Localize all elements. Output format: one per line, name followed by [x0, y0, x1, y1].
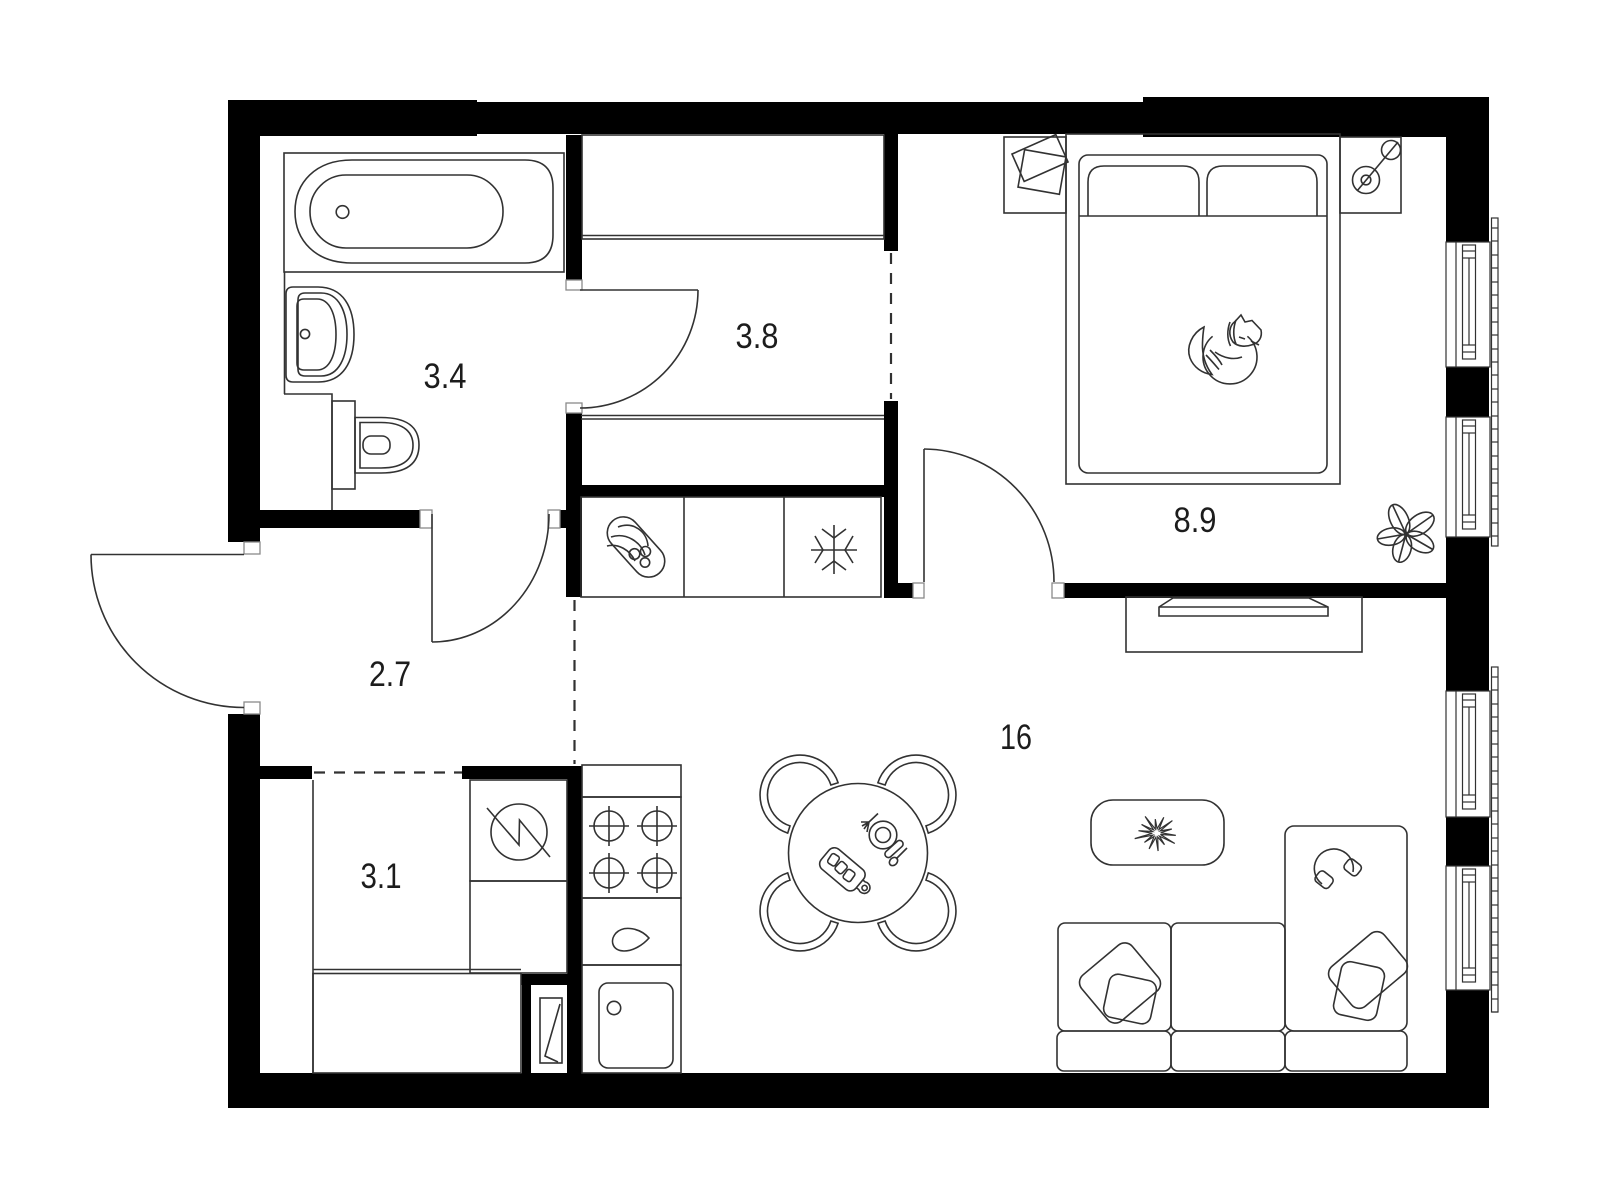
svg-text:3.8: 3.8 [736, 317, 779, 356]
svg-text:8.9: 8.9 [1174, 501, 1217, 540]
svg-text:2.7: 2.7 [369, 655, 411, 694]
svg-text:3.1: 3.1 [361, 857, 402, 896]
svg-text:16: 16 [1000, 718, 1032, 757]
svg-text:3.4: 3.4 [424, 357, 467, 396]
